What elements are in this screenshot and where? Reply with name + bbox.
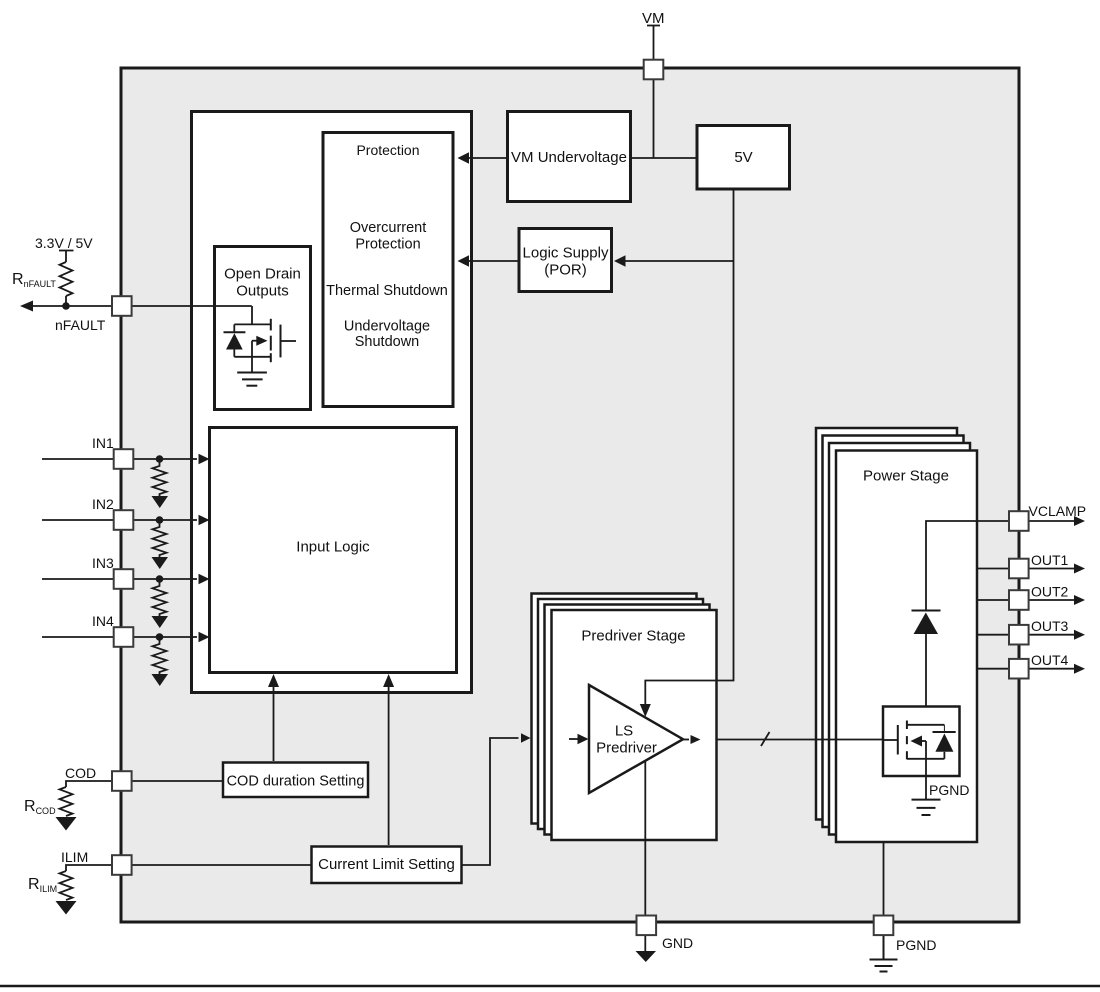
svg-text:Outputs: Outputs [236,283,289,300]
svg-text:Input Logic: Input Logic [296,539,370,556]
svg-text:Open Drain: Open Drain [224,266,301,283]
svg-text:OUT3: OUT3 [1031,618,1069,634]
svg-text:(POR): (POR) [544,262,587,279]
svg-text:GND: GND [662,935,693,951]
svg-text:OUT2: OUT2 [1031,584,1069,600]
svg-text:VM: VM [642,10,665,27]
svg-text:IN3: IN3 [92,555,114,571]
svg-text:COD: COD [65,765,96,781]
svg-text:Logic Supply: Logic Supply [523,245,609,262]
svg-text:OUT1: OUT1 [1031,552,1069,568]
svg-text:Thermal Shutdown: Thermal Shutdown [326,283,448,299]
svg-text:Overcurrent: Overcurrent [350,220,427,236]
svg-text:OUT4: OUT4 [1031,652,1069,668]
svg-text:COD duration Setting: COD duration Setting [227,774,365,790]
svg-text:VM Undervoltage: VM Undervoltage [511,149,627,166]
svg-text:PGND: PGND [896,937,936,953]
svg-text:5V: 5V [734,149,752,166]
svg-text:VCLAMP: VCLAMP [1029,503,1087,519]
svg-text:3.3V / 5V: 3.3V / 5V [35,235,93,251]
svg-text:Shutdown: Shutdown [355,334,420,350]
svg-text:nFAULT: nFAULT [55,317,106,333]
svg-text:LS: LS [615,723,633,740]
svg-text:Predriver Stage: Predriver Stage [581,628,685,645]
svg-text:Current Limit Setting: Current Limit Setting [318,856,455,873]
svg-text:Power Stage: Power Stage [863,468,949,485]
svg-text:Protection: Protection [355,237,420,253]
svg-text:Protection: Protection [356,142,419,158]
svg-text:IN2: IN2 [92,496,114,512]
svg-text:IN4: IN4 [92,613,114,629]
svg-text:IN1: IN1 [92,435,114,451]
svg-text:PGND: PGND [929,782,969,798]
svg-text:Predriver: Predriver [596,740,657,757]
svg-text:Undervoltage: Undervoltage [344,319,430,335]
svg-text:ILIM: ILIM [61,849,88,865]
